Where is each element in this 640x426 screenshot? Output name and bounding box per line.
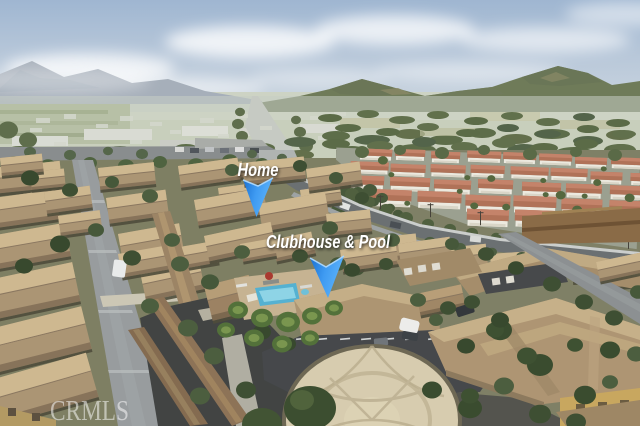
svg-text:Clubhouse & Pool: Clubhouse & Pool: [266, 232, 391, 252]
svg-text:CRMLS: CRMLS: [50, 395, 129, 426]
svg-text:Home: Home: [238, 160, 279, 180]
